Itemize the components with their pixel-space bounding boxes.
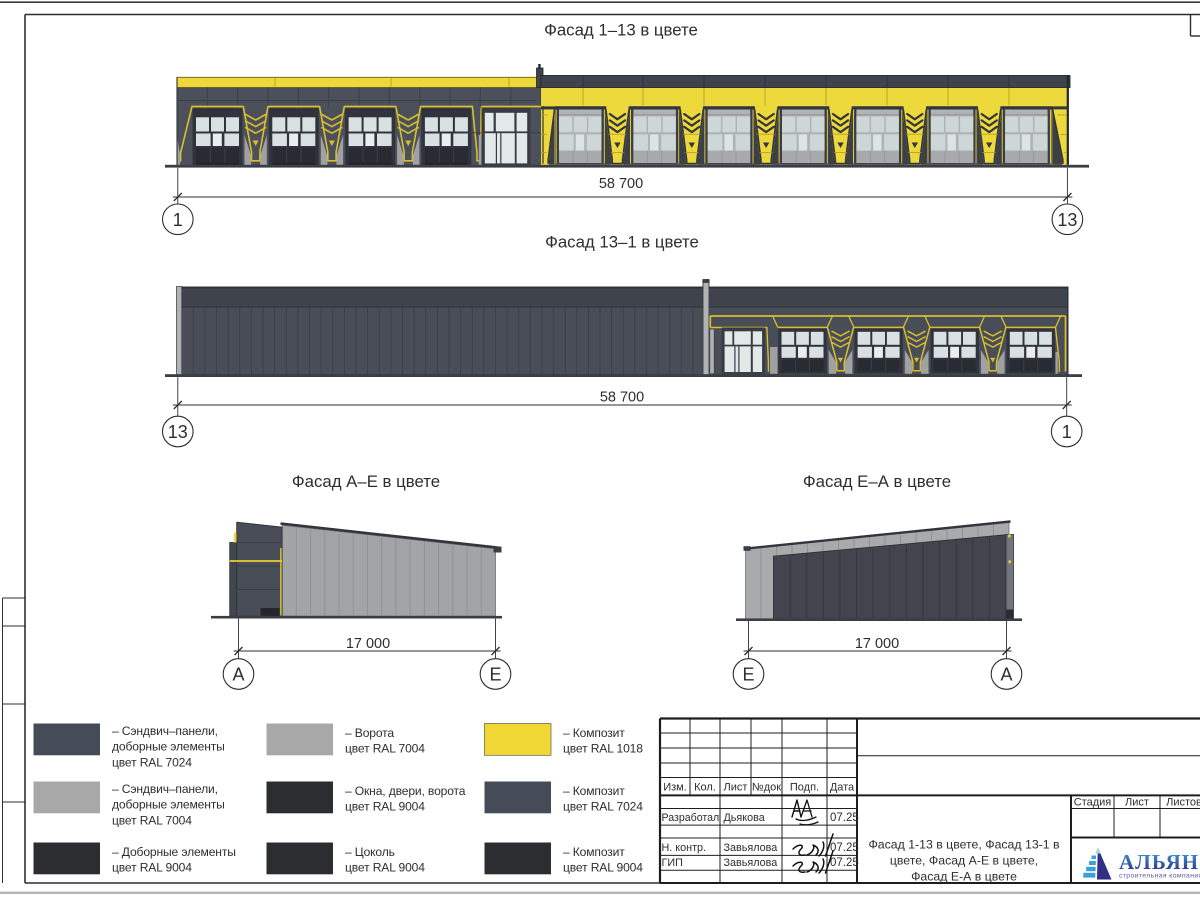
svg-text:цвет RAL 9004: цвет RAL 9004 [345,800,425,814]
svg-text:доборные элементы: доборные элементы [112,740,225,754]
svg-text:– Цоколь: – Цоколь [345,845,395,859]
svg-text:– Композит: – Композит [563,726,625,740]
svg-text:– Ворота: – Ворота [345,726,394,740]
svg-text:Е: Е [489,665,501,685]
svg-text:– Композит: – Композит [563,784,625,798]
svg-text:цвет RAL 7004: цвет RAL 7004 [112,813,192,827]
svg-text:– Композит: – Композит [563,845,625,859]
svg-text:Фасад Е-А в цвете: Фасад Е-А в цвете [911,870,1017,884]
svg-text:13: 13 [168,422,188,442]
svg-text:58 700: 58 700 [600,390,644,406]
svg-text:ГИП: ГИП [662,857,683,869]
svg-text:Дьякова: Дьякова [724,812,765,824]
svg-text:Разработал: Разработал [662,812,720,824]
svg-text:цвет RAL 7024: цвет RAL 7024 [563,800,643,814]
svg-text:13: 13 [1057,210,1077,230]
svg-text:17 000: 17 000 [346,636,390,652]
svg-text:– Окна, двери, ворота: – Окна, двери, ворота [345,784,466,798]
svg-text:– Сэндвич–панели,: – Сэндвич–панели, [112,782,218,796]
svg-text:Завьялова: Завьялова [724,842,778,854]
svg-text:Е: Е [742,665,754,685]
svg-text:строительная компания: строительная компания [1119,873,1200,880]
svg-text:А: А [1000,665,1012,685]
svg-text:07.25: 07.25 [830,842,859,854]
svg-text:Фасад 13–1 в цвете: Фасад 13–1 в цвете [545,233,699,252]
svg-text:доборные элементы: доборные элементы [112,798,225,812]
svg-text:№док: №док [752,782,781,794]
svg-text:1: 1 [1062,422,1072,442]
svg-text:Завьялова: Завьялова [724,857,778,869]
svg-text:07.25: 07.25 [830,857,859,869]
svg-text:цвет RAL 9004: цвет RAL 9004 [345,861,425,875]
svg-text:цвет RAL 1018: цвет RAL 1018 [563,742,643,756]
svg-text:цвет RAL 9004: цвет RAL 9004 [112,861,192,875]
svg-text:– Сэндвич–панели,: – Сэндвич–панели, [112,724,218,738]
svg-text:Дата: Дата [830,782,855,794]
svg-text:цвет RAL 7004: цвет RAL 7004 [345,742,425,756]
svg-text:07.25: 07.25 [830,812,859,824]
svg-text:цвет RAL 7024: цвет RAL 7024 [112,755,192,769]
svg-text:Стадия: Стадия [1074,797,1112,809]
svg-text:Фасад А–Е в цвете: Фасад А–Е в цвете [292,472,440,491]
svg-text:1: 1 [173,210,183,230]
svg-text:Листов: Листов [1166,797,1200,809]
svg-text:Фасад 1–13 в цвете: Фасад 1–13 в цвете [544,21,698,40]
svg-text:17 000: 17 000 [855,636,899,652]
svg-text:цвет RAL 9004: цвет RAL 9004 [563,861,643,875]
svg-text:58 700: 58 700 [599,176,643,192]
svg-text:Лист: Лист [1125,797,1149,809]
svg-text:А: А [232,665,244,685]
svg-text:Подп.: Подп. [790,782,819,794]
svg-text:Кол.: Кол. [694,782,716,794]
svg-text:Фасад 1-13 в цвете, Фасад 13-1: Фасад 1-13 в цвете, Фасад 13-1 в [868,838,1059,852]
svg-text:Фасад Е–А в цвете: Фасад Е–А в цвете [803,472,951,491]
svg-text:Н. контр.: Н. контр. [662,842,707,854]
svg-text:цвете, Фасад А-Е в цвете,: цвете, Фасад А-Е в цвете, [890,854,1038,868]
svg-text:– Доборные элементы: – Доборные элементы [112,845,236,859]
svg-text:Лист: Лист [724,782,748,794]
svg-text:Изм.: Изм. [663,782,687,794]
svg-text:АЛЬЯНС: АЛЬЯНС [1119,850,1200,874]
